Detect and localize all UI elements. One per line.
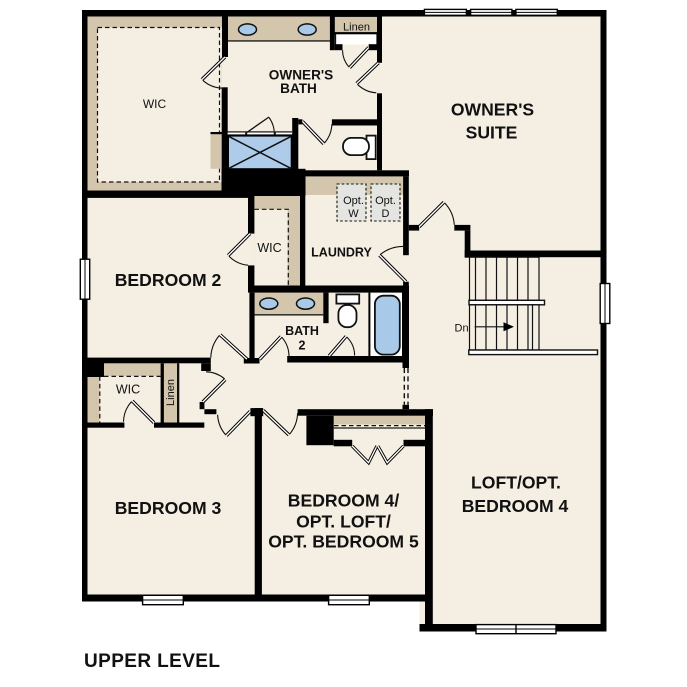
- svg-text:BEDROOM 4/: BEDROOM 4/: [288, 491, 400, 511]
- svg-text:Dn: Dn: [455, 323, 469, 335]
- svg-text:OPT. LOFT/: OPT. LOFT/: [296, 512, 391, 532]
- svg-text:BATH: BATH: [280, 81, 317, 96]
- svg-text:BEDROOM 3: BEDROOM 3: [115, 498, 222, 518]
- svg-text:OPT. BEDROOM 5: OPT. BEDROOM 5: [268, 532, 419, 552]
- svg-text:SUITE: SUITE: [466, 123, 518, 143]
- svg-text:BATH: BATH: [285, 324, 319, 338]
- svg-text:Linen: Linen: [165, 379, 177, 406]
- svg-text:W: W: [348, 208, 359, 220]
- svg-text:WIC: WIC: [116, 383, 140, 397]
- svg-text:D: D: [382, 208, 390, 220]
- svg-text:WIC: WIC: [143, 97, 167, 111]
- svg-text:2: 2: [299, 339, 306, 353]
- svg-text:WIC: WIC: [257, 241, 281, 255]
- svg-text:Linen: Linen: [343, 22, 370, 34]
- svg-text:LAUNDRY: LAUNDRY: [311, 246, 372, 260]
- svg-text:Opt.: Opt.: [343, 195, 364, 207]
- svg-text:LOFT/OPT.: LOFT/OPT.: [471, 473, 561, 493]
- svg-text:OWNER'S: OWNER'S: [451, 100, 535, 120]
- svg-text:UPPER LEVEL: UPPER LEVEL: [84, 651, 220, 672]
- svg-text:Opt.: Opt.: [375, 195, 396, 207]
- svg-text:BEDROOM 2: BEDROOM 2: [115, 270, 222, 290]
- svg-text:BEDROOM 4: BEDROOM 4: [462, 496, 569, 516]
